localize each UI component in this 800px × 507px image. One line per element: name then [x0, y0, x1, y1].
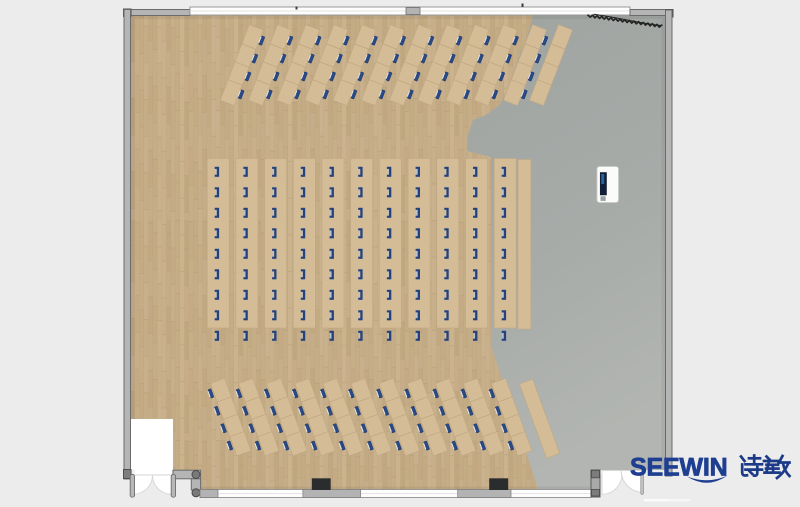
svg-text:SEEWIN: SEEWIN	[630, 454, 727, 482]
